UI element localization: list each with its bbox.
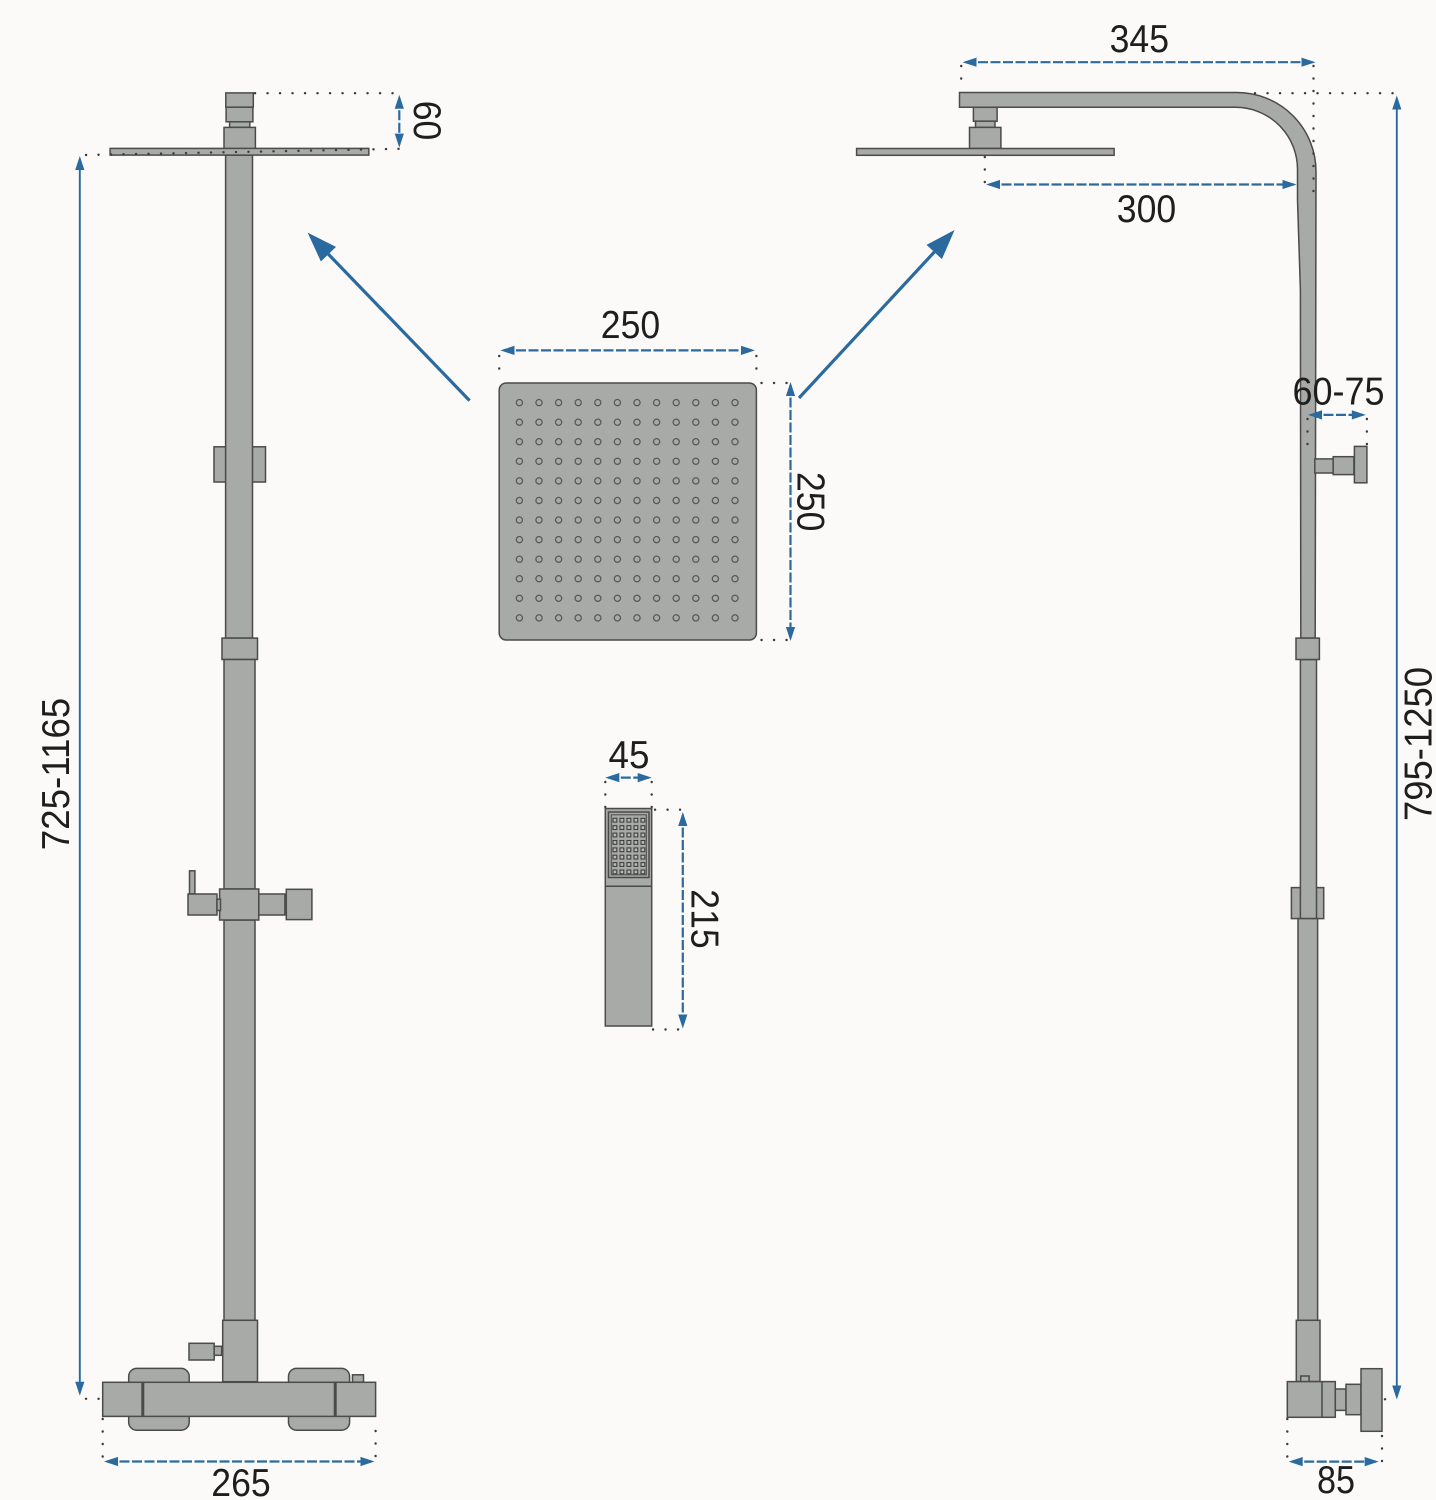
svg-text:60: 60 xyxy=(405,101,448,141)
svg-text:265: 265 xyxy=(211,1462,270,1500)
svg-text:725-1165: 725-1165 xyxy=(35,698,78,851)
svg-text:345: 345 xyxy=(1110,18,1169,61)
svg-text:60-75: 60-75 xyxy=(1293,371,1385,414)
svg-text:300: 300 xyxy=(1117,188,1176,231)
svg-text:45: 45 xyxy=(609,734,650,777)
svg-text:250: 250 xyxy=(601,304,660,347)
svg-text:795-1250: 795-1250 xyxy=(1398,667,1436,821)
svg-text:250: 250 xyxy=(789,472,832,531)
svg-text:85: 85 xyxy=(1317,1459,1355,1500)
svg-text:215: 215 xyxy=(683,889,726,948)
